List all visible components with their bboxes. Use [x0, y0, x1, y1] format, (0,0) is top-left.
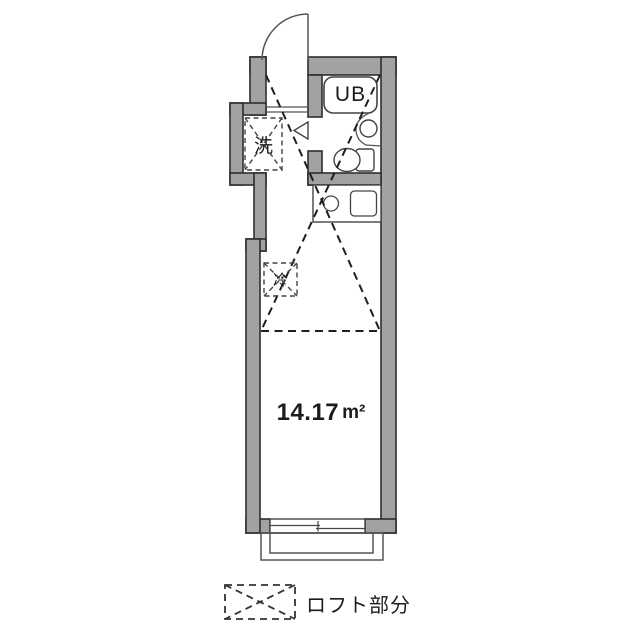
refrigerator-label: 冷	[264, 263, 297, 296]
legend-loft-icon	[225, 585, 295, 619]
entry-door	[262, 14, 308, 60]
burner-icon	[324, 196, 339, 211]
kitchen-sink-icon	[351, 191, 377, 216]
floor-plan: UB 洗 冷 14.17 m² ロフト部分	[0, 0, 640, 640]
wall-bath-kitchen-divider	[308, 173, 381, 185]
toilet-bowl	[334, 149, 360, 172]
room-area-unit: m²	[342, 402, 365, 424]
bath-sink-icon	[360, 120, 377, 137]
balcony	[261, 533, 383, 560]
window	[270, 519, 365, 533]
room-area-label: 14.17 m²	[236, 399, 406, 427]
floor-plan-drawing	[0, 0, 640, 640]
unit-bath-label: UB	[324, 77, 377, 113]
wall-right	[381, 57, 396, 533]
wall-left-main	[246, 239, 260, 533]
entry-step	[266, 107, 308, 112]
entry-door-arc-icon	[262, 14, 308, 60]
legend-loft-label: ロフト部分	[306, 585, 411, 621]
washer-label: 洗	[245, 118, 282, 170]
room-area-value: 14.17	[277, 399, 340, 427]
wall-bottom-right	[365, 519, 396, 533]
bath-door-icon	[294, 122, 308, 139]
wall-bath-upper	[308, 75, 322, 117]
